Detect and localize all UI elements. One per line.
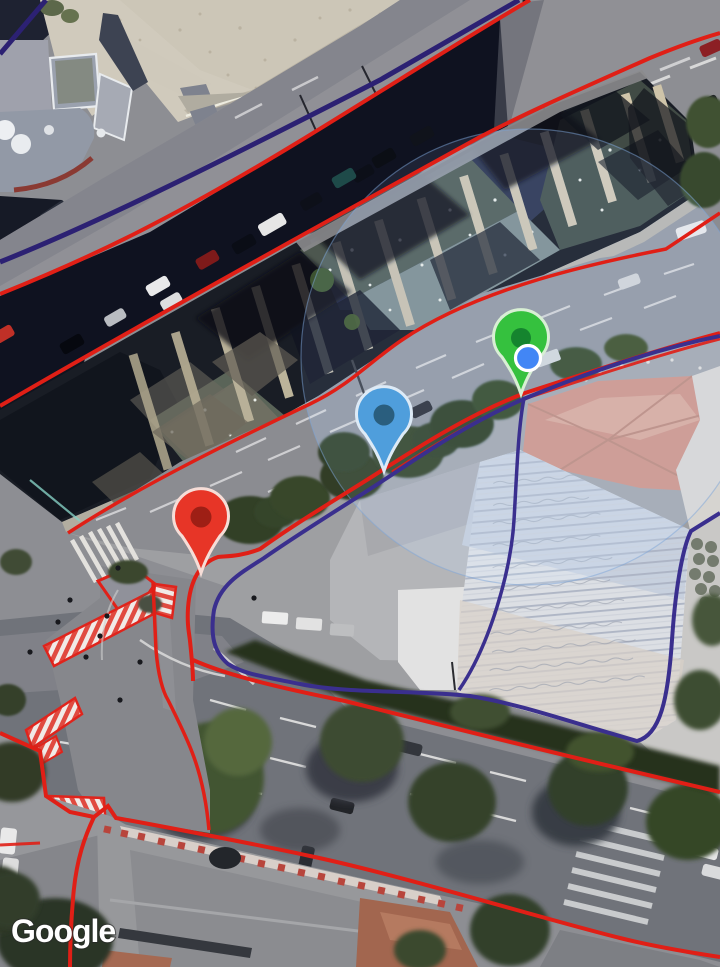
svg-text:Google: Google xyxy=(11,913,115,949)
